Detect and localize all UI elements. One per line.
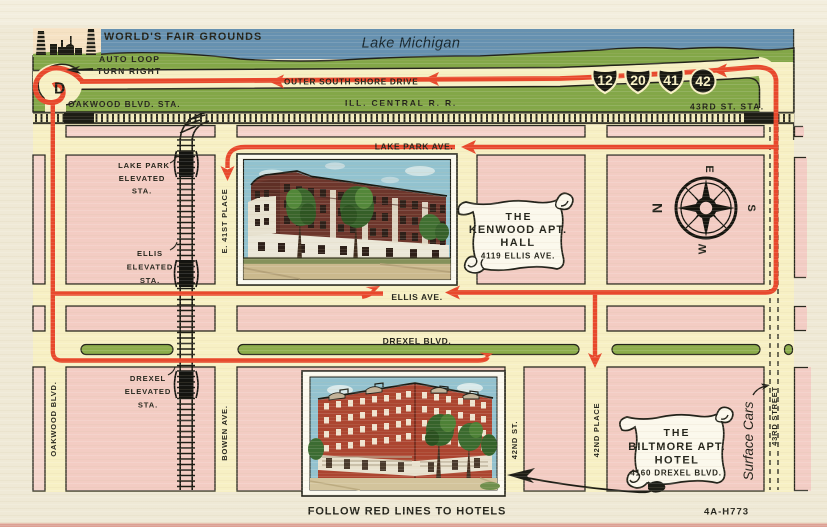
svg-text:DREXEL BLVD.: DREXEL BLVD. (383, 336, 452, 346)
svg-text:AUTO LOOP: AUTO LOOP (99, 54, 160, 64)
svg-text:KENWOOD APT.: KENWOOD APT. (469, 224, 567, 236)
svg-text:41: 41 (663, 72, 679, 88)
svg-text:BILTMORE APT.: BILTMORE APT. (628, 441, 725, 453)
svg-text:WORLD'S FAIR GROUNDS: WORLD'S FAIR GROUNDS (104, 31, 262, 43)
svg-text:Lake Michigan: Lake Michigan (362, 36, 461, 52)
svg-text:ELLIS: ELLIS (137, 249, 163, 258)
svg-text:Surface Cars: Surface Cars (741, 401, 756, 480)
svg-text:20: 20 (630, 72, 646, 88)
svg-text:HOTEL: HOTEL (655, 455, 700, 467)
svg-text:DREXEL: DREXEL (130, 374, 166, 383)
svg-text:ELLIS AVE.: ELLIS AVE. (391, 292, 442, 302)
svg-text:OAKWOOD BLVD.: OAKWOOD BLVD. (49, 381, 58, 456)
svg-text:W: W (697, 243, 709, 254)
svg-text:LAKE PARK AVE.: LAKE PARK AVE. (375, 142, 454, 152)
svg-text:HALL: HALL (500, 237, 535, 249)
svg-text:OAKWOOD BLVD. STA.: OAKWOOD BLVD. STA. (68, 99, 181, 109)
svg-text:D: D (54, 81, 65, 98)
svg-text:43RD STREET: 43RD STREET (770, 386, 779, 446)
svg-text:ILL. CENTRAL R. R.: ILL. CENTRAL R. R. (345, 98, 457, 108)
svg-text:THE: THE (506, 211, 533, 223)
svg-text:FOLLOW RED LINES TO HOTELS: FOLLOW RED LINES TO HOTELS (308, 506, 507, 518)
svg-text:4A-H773: 4A-H773 (704, 507, 749, 518)
svg-text:43RD ST. STA.: 43RD ST. STA. (690, 102, 764, 112)
svg-text:4160 DREXEL BLVD.: 4160 DREXEL BLVD. (630, 469, 722, 478)
svg-text:LAKE PARK: LAKE PARK (118, 161, 170, 170)
svg-text:ELEVATED: ELEVATED (119, 174, 166, 183)
svg-text:42ND PLACE: 42ND PLACE (592, 403, 601, 458)
svg-text:E. 41ST PLACE: E. 41ST PLACE (220, 189, 229, 254)
svg-text:TURN RIGHT: TURN RIGHT (97, 66, 161, 76)
svg-text:BOWEN AVE.: BOWEN AVE. (220, 405, 229, 461)
svg-text:E: E (703, 165, 715, 172)
svg-text:42: 42 (695, 73, 711, 89)
svg-text:OUTER SOUTH SHORE DRIVE: OUTER SOUTH SHORE DRIVE (284, 78, 418, 87)
svg-text:N: N (649, 203, 665, 213)
svg-text:THE: THE (664, 427, 691, 439)
svg-text:ELEVATED: ELEVATED (125, 387, 172, 396)
svg-text:12: 12 (597, 72, 613, 88)
svg-text:4119 ELLIS AVE.: 4119 ELLIS AVE. (481, 252, 555, 261)
svg-text:ELEVATED: ELEVATED (127, 263, 174, 272)
svg-text:STA.: STA. (132, 187, 152, 196)
svg-text:STA.: STA. (140, 276, 160, 285)
svg-text:STA.: STA. (138, 401, 158, 410)
svg-text:42ND ST.: 42ND ST. (510, 421, 519, 460)
svg-text:S: S (745, 204, 757, 211)
